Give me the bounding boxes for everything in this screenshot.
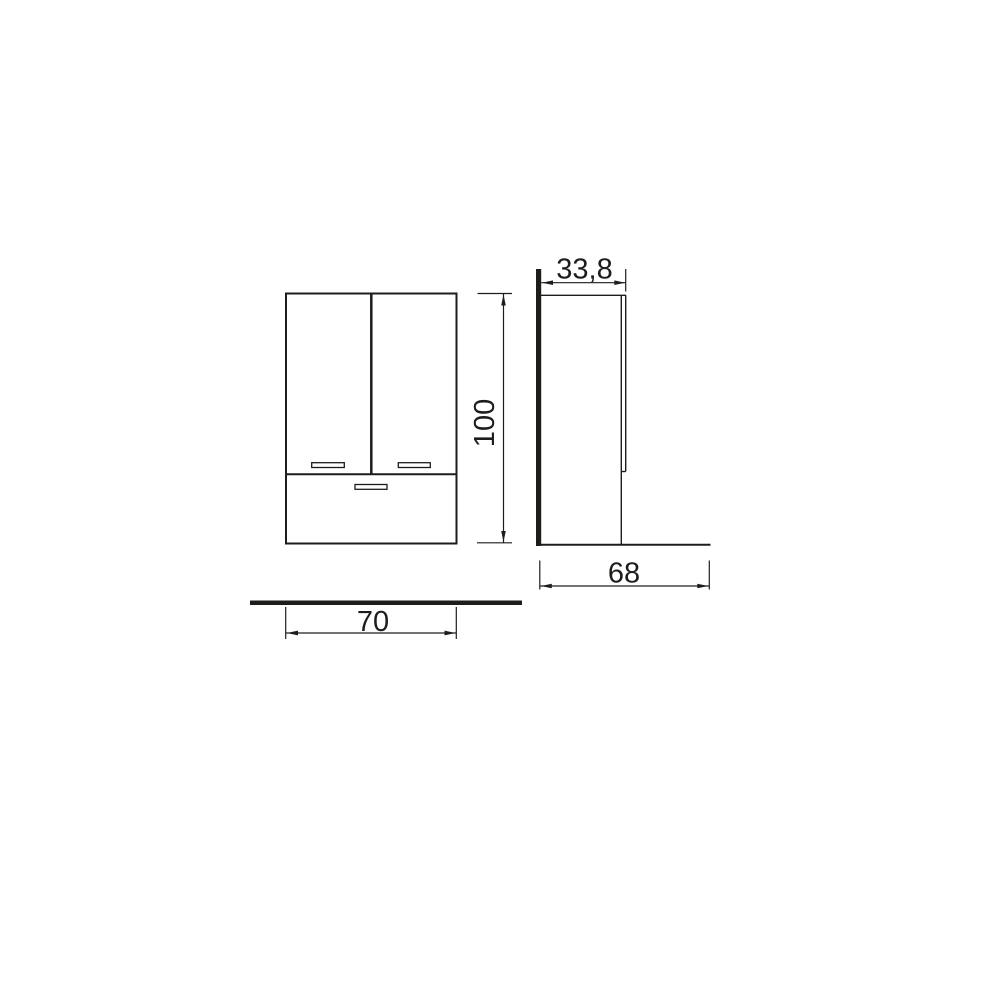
front-left-door-handle (312, 463, 345, 468)
side-bottom-depth-dimension-label: 68 (608, 558, 640, 590)
side-top-depth-dim-left-arrow-icon (542, 280, 553, 285)
side-bottom-depth-dimension: 68 (540, 558, 710, 590)
front-right-door-handle (398, 463, 430, 468)
front-width-dim-right-arrow-icon (445, 631, 456, 636)
front-drawer-handle (355, 485, 387, 490)
side-bottom-depth-dim-right-arrow-icon (697, 584, 708, 589)
front-floor-line (250, 601, 522, 606)
technical-drawing-canvas: 70 100 33,8 (0, 0, 990, 990)
side-bottom-depth-dim-left-arrow-icon (541, 584, 552, 589)
front-width-dim-left-arrow-icon (287, 631, 298, 636)
drawing-page: 70 100 33,8 (0, 0, 990, 990)
side-view (536, 269, 711, 546)
front-height-dimension: 100 (469, 294, 512, 543)
side-top-depth-dim-right-arrow-icon (614, 280, 625, 285)
front-height-dimension-label: 100 (469, 399, 501, 447)
side-top-depth-dimension-label: 33,8 (556, 254, 612, 286)
front-width-dimension-label: 70 (357, 606, 389, 638)
front-view (250, 294, 522, 606)
side-top-depth-dimension: 33,8 (541, 254, 625, 292)
side-wall-line (536, 269, 541, 546)
front-width-dimension: 70 (286, 606, 457, 639)
front-height-dim-top-arrow-icon (501, 295, 506, 306)
front-height-dim-bottom-arrow-icon (501, 531, 506, 542)
